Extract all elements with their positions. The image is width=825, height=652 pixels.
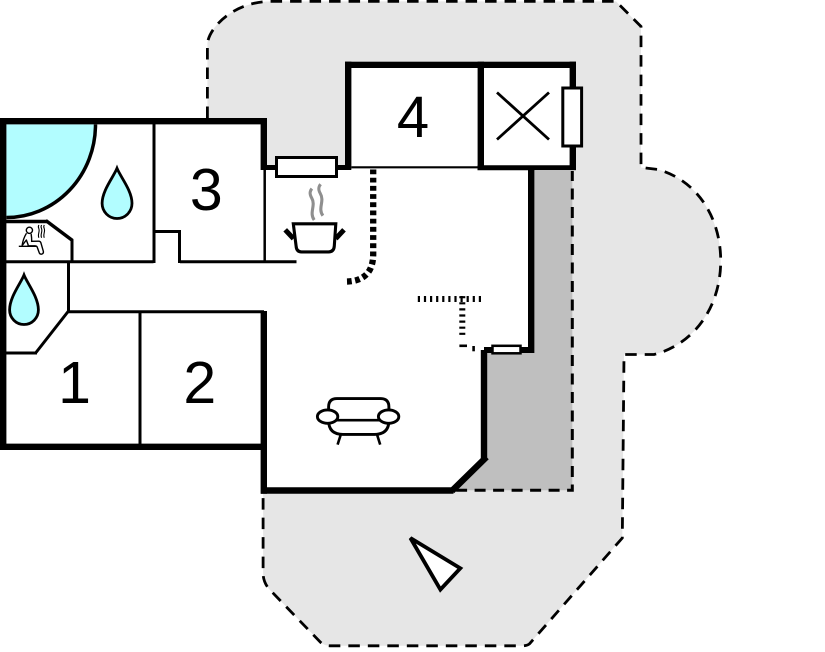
svg-text:1: 1: [58, 350, 91, 416]
svg-text:2: 2: [183, 350, 216, 416]
svg-text:4: 4: [397, 85, 429, 150]
svg-text:3: 3: [190, 157, 223, 223]
